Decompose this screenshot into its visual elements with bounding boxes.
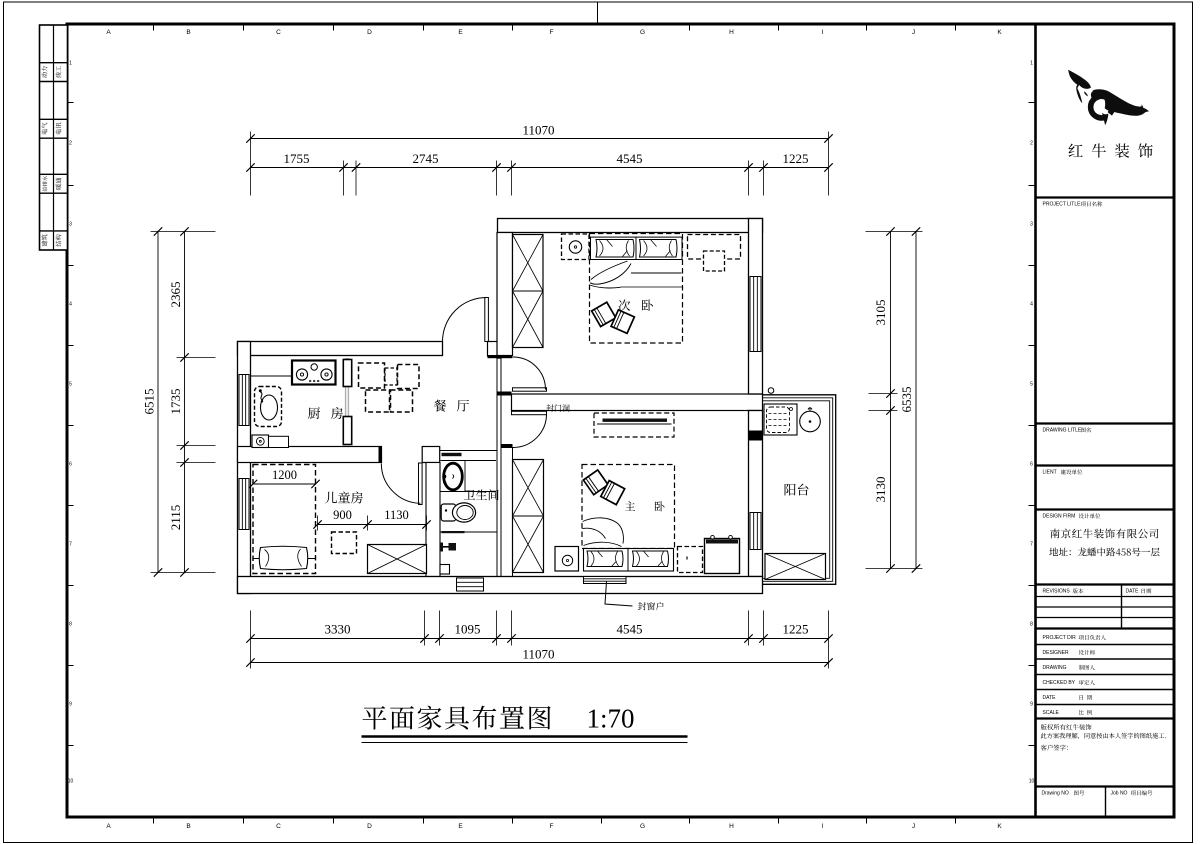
svg-text:DESIGN FIRM: DESIGN FIRM bbox=[1043, 514, 1076, 520]
svg-text:DATE: DATE bbox=[1043, 695, 1057, 701]
svg-text:7: 7 bbox=[69, 542, 72, 548]
svg-text:SCALE: SCALE bbox=[1043, 710, 1060, 716]
svg-text:5: 5 bbox=[1030, 382, 1033, 388]
svg-text:3: 3 bbox=[1030, 222, 1033, 228]
svg-text:H: H bbox=[729, 823, 734, 830]
svg-text:5: 5 bbox=[69, 382, 72, 388]
svg-text:DESIGNER: DESIGNER bbox=[1043, 650, 1070, 656]
svg-text:PROJECT LITLE: PROJECT LITLE bbox=[1043, 202, 1082, 208]
svg-text:1: 1 bbox=[69, 61, 72, 67]
svg-text:1130: 1130 bbox=[384, 508, 409, 522]
svg-text:E: E bbox=[458, 823, 463, 830]
svg-text:H: H bbox=[729, 29, 734, 36]
svg-text:4545: 4545 bbox=[617, 151, 643, 166]
svg-text:1:70: 1:70 bbox=[586, 704, 634, 734]
svg-text:10: 10 bbox=[1029, 779, 1035, 785]
svg-text:3130: 3130 bbox=[873, 477, 888, 503]
svg-text:7: 7 bbox=[1030, 542, 1033, 548]
svg-text:2115: 2115 bbox=[168, 505, 183, 531]
svg-text:I: I bbox=[822, 29, 824, 36]
svg-text:D: D bbox=[367, 29, 372, 36]
svg-text:1225: 1225 bbox=[783, 622, 809, 637]
svg-text:900: 900 bbox=[333, 508, 352, 522]
svg-text:11070: 11070 bbox=[522, 123, 554, 138]
svg-text:2: 2 bbox=[69, 141, 72, 147]
svg-text:6515: 6515 bbox=[142, 389, 157, 415]
svg-text:G: G bbox=[640, 29, 645, 36]
svg-text:D: D bbox=[367, 823, 372, 830]
svg-text:K: K bbox=[997, 29, 1002, 36]
svg-text:F: F bbox=[550, 29, 554, 36]
svg-text:J: J bbox=[912, 823, 915, 830]
svg-text:10: 10 bbox=[68, 779, 74, 785]
svg-text:CHECKED BY: CHECKED BY bbox=[1043, 680, 1076, 686]
svg-text:4545: 4545 bbox=[617, 622, 643, 637]
svg-text:1755: 1755 bbox=[284, 151, 310, 166]
svg-text:DRAWING LITLE: DRAWING LITLE bbox=[1043, 428, 1082, 434]
svg-text:6535: 6535 bbox=[899, 387, 914, 413]
svg-text:3: 3 bbox=[69, 222, 72, 228]
svg-text:PROJECT DIR: PROJECT DIR bbox=[1043, 635, 1077, 641]
svg-text:I: I bbox=[822, 823, 824, 830]
svg-text:2745: 2745 bbox=[413, 151, 439, 166]
svg-text:LIENT: LIENT bbox=[1043, 470, 1057, 476]
svg-text:REVISIONS: REVISIONS bbox=[1043, 589, 1071, 595]
svg-text:DATE: DATE bbox=[1126, 589, 1140, 595]
svg-text:8: 8 bbox=[69, 622, 72, 628]
svg-text:11070: 11070 bbox=[522, 647, 554, 662]
svg-text:E: E bbox=[458, 29, 463, 36]
svg-text:1: 1 bbox=[1030, 61, 1033, 67]
svg-text:Job NO: Job NO bbox=[1111, 791, 1128, 797]
svg-text:J: J bbox=[912, 29, 915, 36]
svg-text:3105: 3105 bbox=[873, 300, 888, 326]
svg-text:DRAWING: DRAWING bbox=[1043, 665, 1067, 671]
svg-text:G: G bbox=[640, 823, 645, 830]
svg-text:2: 2 bbox=[1030, 141, 1033, 147]
svg-text:K: K bbox=[997, 823, 1002, 830]
svg-text:9: 9 bbox=[69, 702, 72, 708]
svg-text:Drawing NO: Drawing NO bbox=[1042, 791, 1069, 797]
svg-text:4: 4 bbox=[69, 302, 72, 308]
svg-text:1095: 1095 bbox=[455, 622, 481, 637]
svg-text:C: C bbox=[276, 29, 281, 36]
svg-text:2365: 2365 bbox=[168, 282, 183, 308]
svg-text:4: 4 bbox=[1030, 302, 1033, 308]
svg-text:9: 9 bbox=[1030, 702, 1033, 708]
svg-text:B: B bbox=[186, 29, 190, 36]
svg-text:A: A bbox=[106, 823, 111, 830]
svg-text:B: B bbox=[186, 823, 190, 830]
svg-text:6: 6 bbox=[1030, 462, 1033, 468]
svg-text:6: 6 bbox=[69, 462, 72, 468]
svg-text:C: C bbox=[276, 823, 281, 830]
svg-text:A: A bbox=[106, 29, 111, 36]
svg-text:F: F bbox=[550, 823, 554, 830]
svg-text:1735: 1735 bbox=[168, 389, 183, 415]
svg-text:1200: 1200 bbox=[272, 468, 297, 482]
svg-text:1225: 1225 bbox=[783, 151, 809, 166]
svg-text:3330: 3330 bbox=[325, 622, 351, 637]
svg-text:8: 8 bbox=[1030, 622, 1033, 628]
